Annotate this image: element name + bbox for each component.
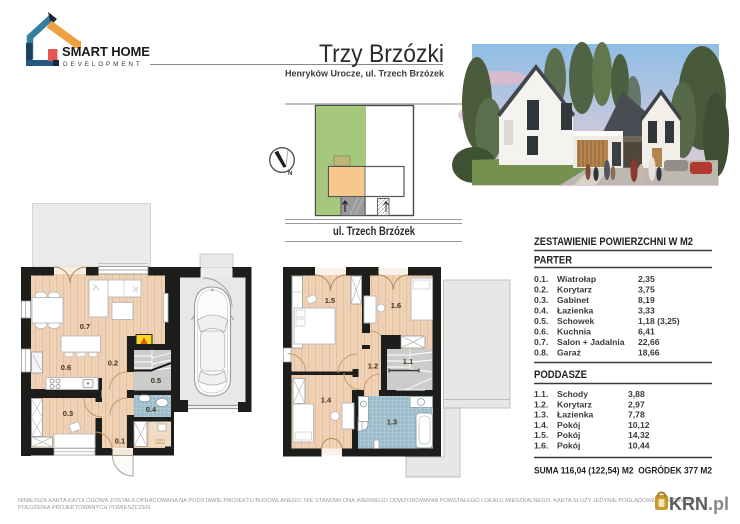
svg-text:1.5: 1.5 — [325, 296, 335, 305]
svg-text:0.7: 0.7 — [80, 322, 90, 331]
svg-text:0.2: 0.2 — [108, 359, 118, 368]
svg-text:0.4: 0.4 — [146, 405, 157, 414]
svg-text:2,97: 2,97 — [628, 399, 645, 409]
svg-text:1.1.: 1.1. — [534, 389, 548, 399]
svg-text:0.5: 0.5 — [151, 376, 161, 385]
svg-text:Pokój: Pokój — [557, 441, 580, 451]
svg-text:0.3: 0.3 — [63, 409, 73, 418]
svg-text:22,66: 22,66 — [638, 337, 660, 347]
svg-text:2,35: 2,35 — [638, 274, 655, 284]
svg-text:NINIEJSZA KARTA KATOLOGOWA ZOS: NINIEJSZA KARTA KATOLOGOWA ZOSTAŁA OPRAC… — [18, 497, 699, 504]
svg-text:0.1.: 0.1. — [534, 274, 548, 284]
svg-text:DEVELOPMENT: DEVELOPMENT — [63, 61, 143, 68]
svg-text:1.6: 1.6 — [391, 301, 401, 310]
svg-text:1.4.: 1.4. — [534, 420, 548, 430]
svg-text:PODDASZE: PODDASZE — [534, 369, 587, 381]
svg-text:3,75: 3,75 — [638, 285, 655, 295]
svg-text:0.2.: 0.2. — [534, 285, 548, 295]
svg-text:Salon + Jadalnia: Salon + Jadalnia — [557, 337, 625, 347]
svg-text:10,12: 10,12 — [628, 420, 650, 430]
svg-text:1.4: 1.4 — [321, 396, 332, 405]
svg-text:0.5.: 0.5. — [534, 316, 548, 326]
svg-text:Schowek: Schowek — [557, 316, 594, 326]
svg-text:0.6.: 0.6. — [534, 327, 548, 337]
svg-text:0.7.: 0.7. — [534, 337, 548, 347]
svg-text:1.2: 1.2 — [368, 362, 378, 371]
svg-text:Kuchnia: Kuchnia — [557, 327, 591, 337]
svg-text:18,66: 18,66 — [638, 348, 660, 358]
svg-text:1.3.: 1.3. — [534, 410, 548, 420]
svg-text:0.8.: 0.8. — [534, 348, 548, 358]
svg-text:0.4.: 0.4. — [534, 306, 548, 316]
svg-text:ZESTAWIENIE POWIERZCHNI W M2: ZESTAWIENIE POWIERZCHNI W M2 — [534, 236, 693, 248]
svg-text:6,41: 6,41 — [638, 327, 655, 337]
svg-text:Gabinet: Gabinet — [557, 295, 589, 305]
svg-text:Henryków Urocze, ul. Trzech Br: Henryków Urocze, ul. Trzech Brzózek — [285, 69, 445, 79]
svg-text:Garaż: Garaż — [557, 348, 581, 358]
svg-text:SMART HOME: SMART HOME — [62, 44, 150, 59]
svg-text:0.1: 0.1 — [115, 437, 125, 446]
svg-text:1.6.: 1.6. — [534, 441, 548, 451]
svg-text:0.3.: 0.3. — [534, 295, 548, 305]
svg-text:KRN.pl: KRN.pl — [669, 494, 729, 514]
svg-text:Wiatrołap: Wiatrołap — [557, 274, 596, 284]
svg-text:Schody: Schody — [557, 389, 588, 399]
svg-text:Korytarz: Korytarz — [557, 399, 592, 409]
svg-text:Łazienka: Łazienka — [557, 306, 594, 316]
svg-text:7,78: 7,78 — [628, 410, 645, 420]
svg-text:1.1: 1.1 — [403, 357, 413, 366]
svg-text:Pokój: Pokój — [557, 430, 580, 440]
svg-text:1.5.: 1.5. — [534, 430, 548, 440]
svg-text:Trzy Brzózki: Trzy Brzózki — [319, 40, 444, 68]
svg-text:SUMA 116,04 (122,54) M2 OGRÓD: SUMA 116,04 (122,54) M2 OGRÓDEK 377 M2 — [534, 465, 712, 476]
svg-text:Łazienka: Łazienka — [557, 410, 594, 420]
svg-text:PARTER: PARTER — [534, 255, 572, 267]
svg-text:14,32: 14,32 — [628, 430, 650, 440]
svg-text:3,33: 3,33 — [638, 306, 655, 316]
svg-text:0.6: 0.6 — [61, 363, 71, 372]
svg-text:1.2.: 1.2. — [534, 399, 548, 409]
svg-text:1,18 (3,25): 1,18 (3,25) — [638, 316, 680, 326]
svg-text:3,88: 3,88 — [628, 389, 645, 399]
svg-text:POŁOŻENIA PROJEKTOWANYCH POMIE: POŁOŻENIA PROJEKTOWANYCH POMIESZCZEŃ. — [18, 504, 152, 511]
svg-text:8,19: 8,19 — [638, 295, 655, 305]
svg-text:N: N — [288, 170, 293, 177]
svg-text:1.3: 1.3 — [387, 418, 397, 427]
svg-text:10,44: 10,44 — [628, 441, 650, 451]
svg-text:Korytarz: Korytarz — [557, 285, 592, 295]
svg-text:ul. Trzech Brzózek: ul. Trzech Brzózek — [333, 226, 415, 238]
svg-text:Pokój: Pokój — [557, 420, 580, 430]
